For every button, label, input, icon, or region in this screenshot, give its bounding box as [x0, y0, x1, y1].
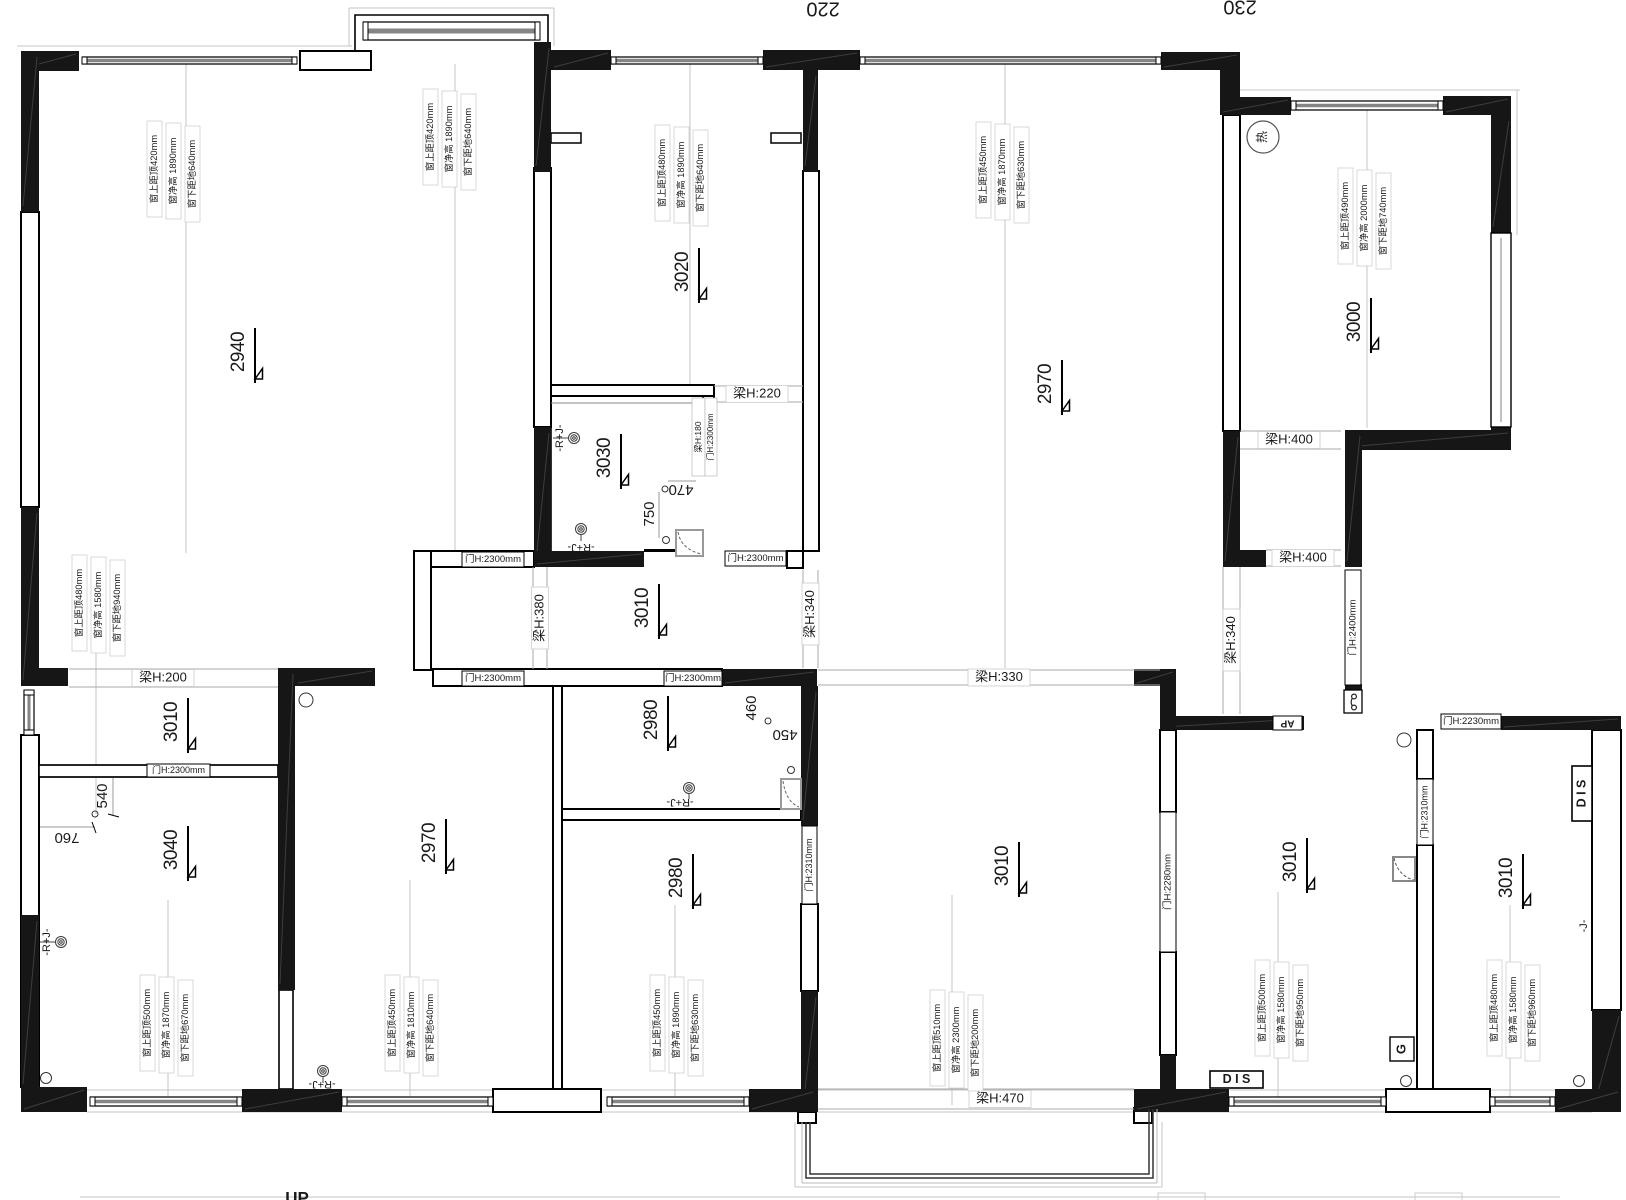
svg-text:3000: 3000 [1344, 302, 1365, 342]
svg-text:-R+J-: -R+J- [666, 796, 694, 808]
svg-text:窗净高 2300mm: 窗净高 2300mm [950, 1006, 961, 1073]
svg-text:梁H:470: 梁H:470 [976, 1090, 1024, 1105]
svg-text:450: 450 [772, 726, 797, 743]
svg-text:门H:2300mm: 门H:2300mm [728, 552, 784, 564]
svg-text:窗下距地670mm: 窗下距地670mm [179, 994, 190, 1062]
svg-text:3040: 3040 [161, 830, 182, 870]
svg-text:窗上距顶420mm: 窗上距顶420mm [424, 103, 435, 171]
svg-text:540: 540 [94, 783, 111, 808]
svg-text:2970: 2970 [419, 823, 440, 863]
svg-text:窗上距顶490mm: 窗上距顶490mm [1339, 182, 1350, 250]
svg-text:2980: 2980 [666, 858, 687, 898]
svg-text:门H:2300mm: 门H:2300mm [465, 553, 521, 565]
svg-text:梁H:220: 梁H:220 [733, 385, 781, 400]
svg-text:窗净高 1890mm: 窗净高 1890mm [443, 105, 454, 172]
svg-text:窗上距顶510mm: 窗上距顶510mm [931, 1004, 942, 1072]
svg-text:-R+J-: -R+J- [41, 928, 53, 956]
svg-text:窗净高 1580mm: 窗净高 1580mm [92, 571, 103, 638]
svg-text:3010: 3010 [1280, 842, 1301, 882]
svg-text:窗上距顶450mm: 窗上距顶450mm [386, 989, 397, 1057]
svg-text:门H:2280mm: 门H:2280mm [1162, 854, 1174, 910]
svg-text:窗净高 1890mm: 窗净高 1890mm [167, 137, 178, 204]
svg-text:窗上距顶420mm: 窗上距顶420mm [148, 135, 159, 203]
svg-text:窗净高 1890mm: 窗净高 1890mm [675, 141, 686, 208]
svg-text:窗上距顶450mm: 窗上距顶450mm [977, 136, 988, 204]
svg-text:760: 760 [54, 829, 79, 846]
svg-text:门H:2310mm: 门H:2310mm [1418, 785, 1429, 838]
svg-text:窗上距顶500mm: 窗上距顶500mm [1256, 974, 1267, 1042]
svg-text:2970: 2970 [1035, 364, 1056, 404]
svg-text:470: 470 [668, 481, 693, 498]
svg-text:门H:2300mm: 门H:2300mm [665, 672, 721, 684]
svg-text:3010: 3010 [992, 846, 1013, 886]
svg-text:梁H:200: 梁H:200 [139, 669, 187, 684]
svg-text:窗上距顶500mm: 窗上距顶500mm [141, 989, 152, 1057]
svg-text:窗下距地630mm: 窗下距地630mm [1015, 141, 1026, 209]
svg-text:梁H:180: 梁H:180 [693, 421, 703, 452]
svg-text:梁H:400: 梁H:400 [1279, 549, 1327, 564]
svg-text:窗上距顶480mm: 窗上距顶480mm [656, 139, 667, 207]
svg-text:AP: AP [1280, 717, 1294, 728]
svg-text:UP: UP [285, 1188, 309, 1200]
svg-text:窗下距地640mm: 窗下距地640mm [462, 108, 473, 176]
svg-text:3010: 3010 [161, 702, 182, 742]
svg-text:G: G [1393, 1044, 1408, 1054]
svg-text:窗净高 1580mm: 窗净高 1580mm [1507, 976, 1518, 1043]
svg-text:窗下距地200mm: 窗下距地200mm [969, 1009, 980, 1077]
svg-text:窗下距地630mm: 窗下距地630mm [689, 994, 700, 1062]
svg-text:2940: 2940 [228, 332, 249, 372]
svg-text:3010: 3010 [632, 588, 653, 628]
svg-text:D I S: D I S [1574, 780, 1588, 808]
svg-text:2980: 2980 [641, 700, 662, 740]
svg-text:3030: 3030 [594, 438, 615, 478]
svg-text:梁H:340: 梁H:340 [802, 590, 817, 638]
svg-text:-R+J-: -R+J- [567, 541, 595, 553]
svg-text:窗下距地740mm: 窗下距地740mm [1377, 187, 1388, 255]
svg-text:门H:2300mm: 门H:2300mm [705, 413, 715, 460]
svg-text:窗下距地640mm: 窗下距地640mm [424, 994, 435, 1062]
svg-text:窗上距顶450mm: 窗上距顶450mm [651, 989, 662, 1057]
svg-text:D I S: D I S [1223, 1072, 1251, 1086]
svg-text:750: 750 [641, 501, 658, 526]
svg-text:窗净高 1870mm: 窗净高 1870mm [160, 991, 171, 1058]
svg-text:窗净高 1580mm: 窗净高 1580mm [1275, 976, 1286, 1043]
svg-text:梁H:330: 梁H:330 [975, 669, 1023, 684]
svg-text:窗净高 1890mm: 窗净高 1890mm [670, 991, 681, 1058]
svg-text:窗下距地960mm: 窗下距地960mm [1526, 979, 1537, 1047]
svg-text:窗上距顶480mm: 窗上距顶480mm [73, 569, 84, 637]
svg-text:3020: 3020 [672, 252, 693, 292]
svg-text:梁H:380: 梁H:380 [531, 594, 546, 642]
svg-text:门H:2300mm: 门H:2300mm [152, 764, 205, 775]
svg-text:窗净高 2000mm: 窗净高 2000mm [1358, 184, 1369, 251]
svg-text:220: 220 [806, 0, 839, 20]
svg-text:门H:2310mm: 门H:2310mm [803, 838, 814, 891]
svg-text:-J-: -J- [1578, 919, 1590, 932]
svg-text:门H:2300mm: 门H:2300mm [465, 672, 521, 684]
svg-text:窗下距地950mm: 窗下距地950mm [1294, 979, 1305, 1047]
svg-text:3010: 3010 [1496, 858, 1517, 898]
svg-text:门H:2230mm: 门H:2230mm [1443, 715, 1499, 727]
svg-text:热: 热 [1255, 131, 1269, 143]
svg-text:230: 230 [1223, 0, 1256, 18]
svg-text:窗下距地640mm: 窗下距地640mm [694, 144, 705, 212]
svg-text:窗净高 1870mm: 窗净高 1870mm [996, 138, 1007, 205]
svg-text:梁H:340: 梁H:340 [1223, 616, 1238, 664]
svg-text:窗下距地940mm: 窗下距地940mm [111, 574, 122, 642]
svg-text:门H:2400mm: 门H:2400mm [1347, 599, 1359, 655]
svg-text:梁H:400: 梁H:400 [1265, 431, 1313, 446]
svg-text:窗下距地640mm: 窗下距地640mm [186, 140, 197, 208]
svg-text:窗上距顶480mm: 窗上距顶480mm [1488, 974, 1499, 1042]
svg-text:-R+J-: -R+J- [554, 424, 566, 452]
svg-text:窗净高 1810mm: 窗净高 1810mm [405, 991, 416, 1058]
svg-text:460: 460 [743, 695, 760, 720]
svg-text:-R+J-: -R+J- [308, 1078, 336, 1090]
